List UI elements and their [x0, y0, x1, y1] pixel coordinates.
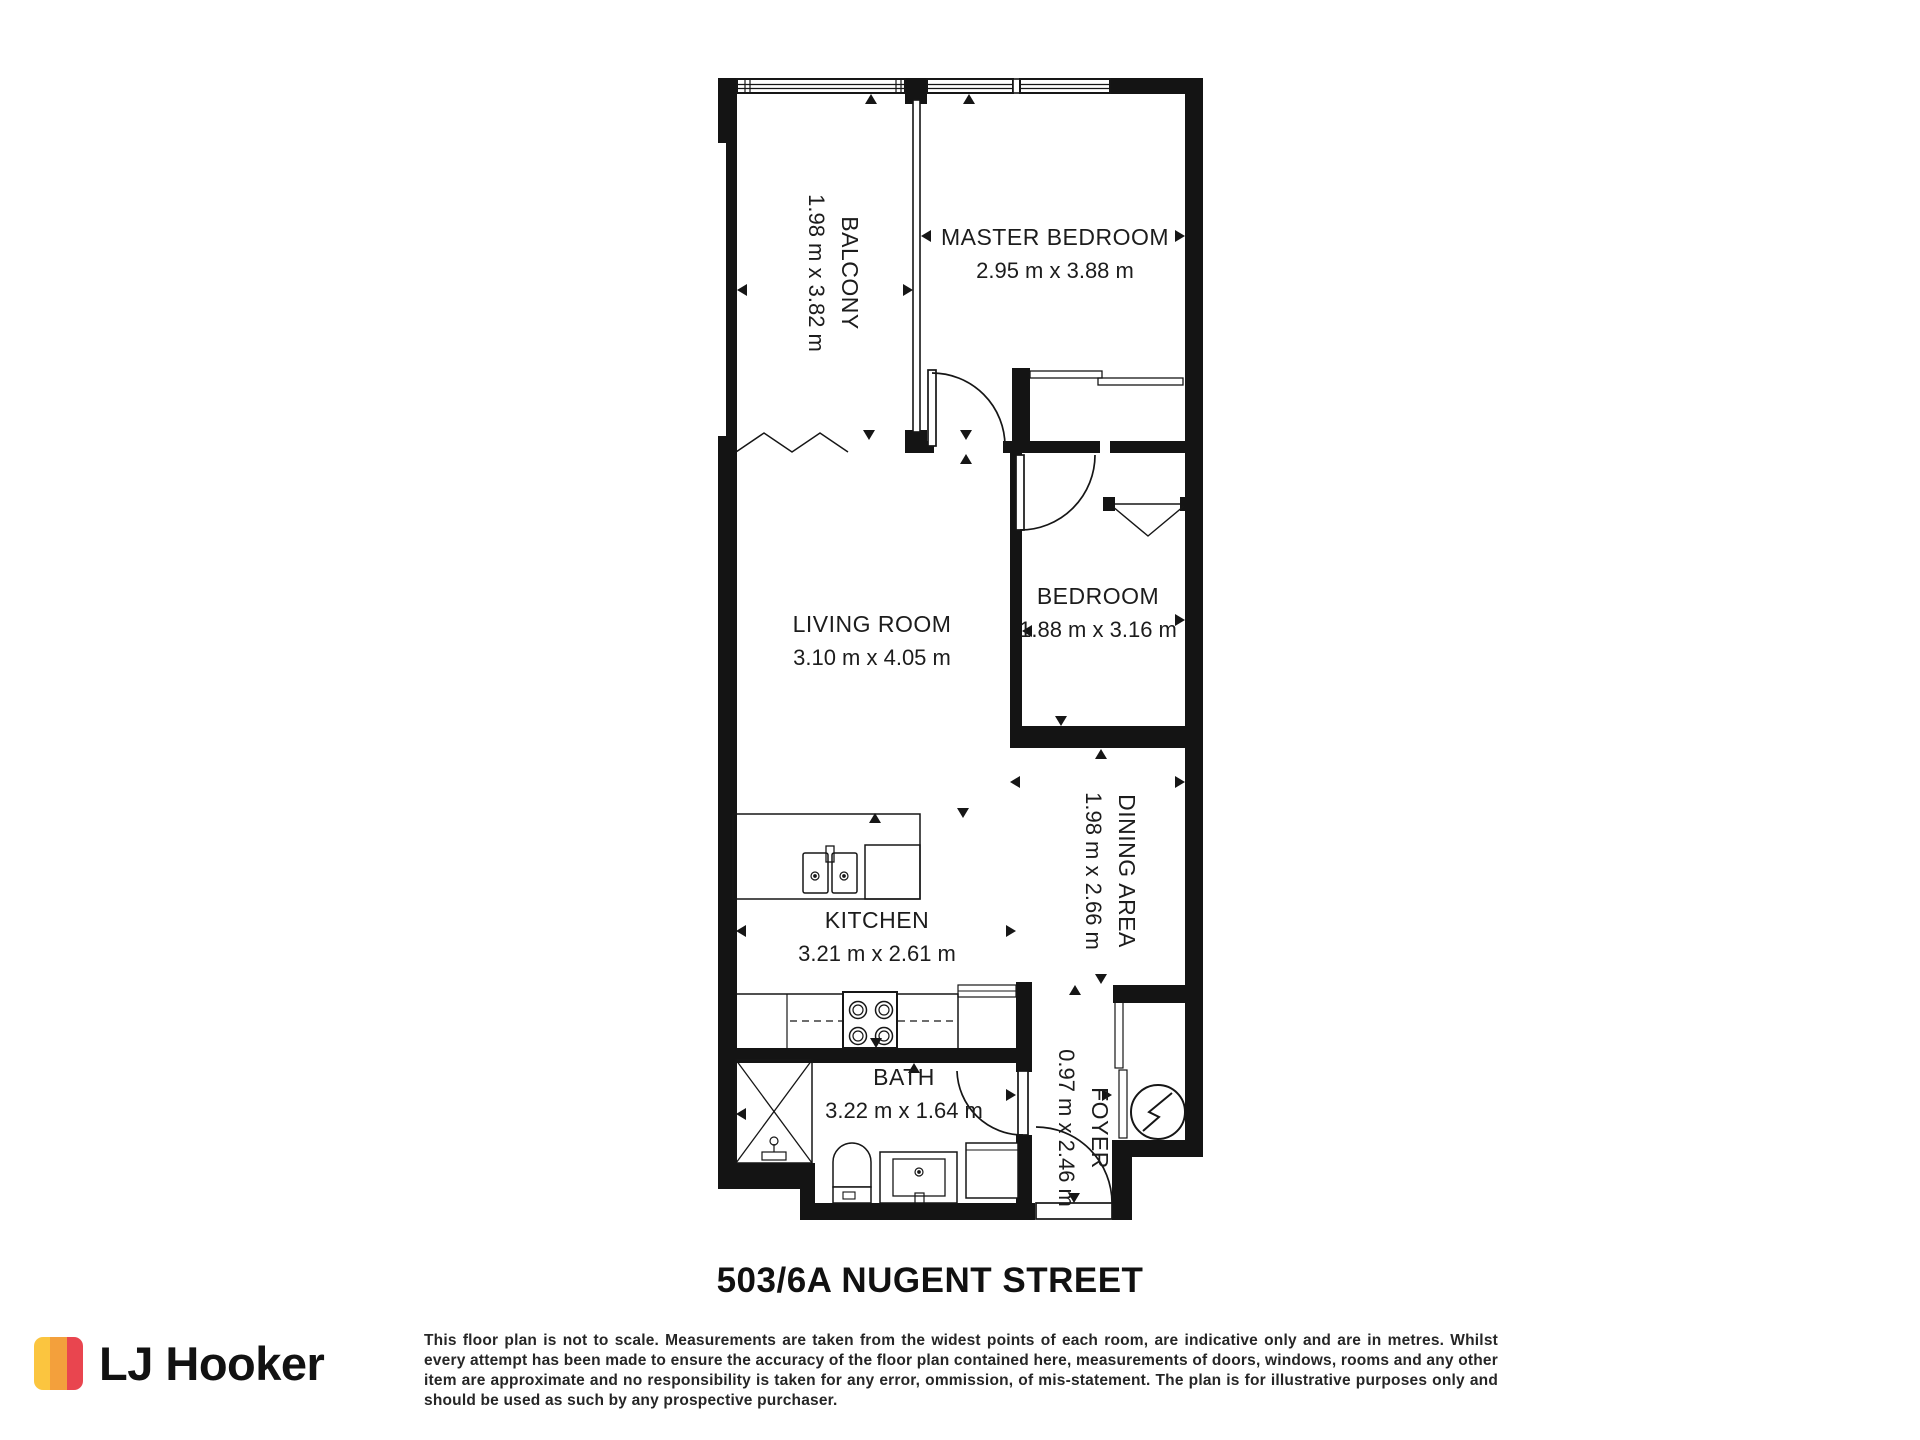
- room-name: KITCHEN: [798, 904, 956, 937]
- logo-bar-red: [67, 1337, 83, 1390]
- balcony-open-edge-zigzag: [736, 433, 848, 452]
- shower-head-icon: [762, 1137, 786, 1160]
- floor-plan-page: BALCONY 1.98 m x 3.82 m MASTER BEDROOM 2…: [0, 0, 1920, 1440]
- room-dimensions: 2.95 m x 3.88 m: [941, 254, 1169, 287]
- room-name: BALCONY: [833, 194, 866, 352]
- room-name: BATH: [825, 1061, 983, 1094]
- washing-machine-icon: [966, 1143, 1018, 1198]
- glass-divider-balcony: [913, 100, 920, 432]
- logo-bar-orange: [50, 1337, 66, 1390]
- window-master-right: [1020, 79, 1110, 93]
- room-name: MASTER BEDROOM: [941, 221, 1169, 254]
- room-label-balcony: BALCONY 1.98 m x 3.82 m: [800, 194, 866, 352]
- wall-bedroom-bottom: [1010, 726, 1203, 748]
- wall-nook-top: [1113, 985, 1203, 1003]
- room-dimensions: 0.97 m x 2.46 m: [1050, 1049, 1083, 1207]
- wall-wardrobe-post: [1012, 368, 1030, 453]
- room-dimensions: 1.88 m x 3.16 m: [1019, 613, 1177, 646]
- room-name: FOYER: [1083, 1049, 1116, 1207]
- room-label-kitchen: KITCHEN 3.21 m x 2.61 m: [798, 904, 956, 970]
- bedroom-door: [1016, 455, 1095, 530]
- vanity-sink-icon: [880, 1152, 957, 1204]
- room-name: LIVING ROOM: [793, 608, 952, 641]
- bedroom-wardrobe: [1103, 497, 1192, 536]
- room-name: DINING AREA: [1110, 792, 1143, 950]
- room-dimensions: 1.98 m x 2.66 m: [1077, 792, 1110, 950]
- room-dimensions: 1.98 m x 3.82 m: [800, 194, 833, 352]
- logo-bar-yellow: [34, 1337, 50, 1390]
- window-master-left: [927, 79, 1013, 93]
- wall-divider-foot: [905, 430, 927, 453]
- electrical-meter-icon: [1131, 1085, 1185, 1139]
- foyer-cupboard-sliding-doors: [1115, 1000, 1127, 1138]
- wardrobe-hanging-icon: [1112, 506, 1184, 536]
- disclaimer-text: This floor plan is not to scale. Measure…: [424, 1331, 1498, 1411]
- lj-hooker-logo-icon: [34, 1337, 83, 1390]
- wall-nook-bottom: [1123, 1140, 1203, 1157]
- room-label-bedroom: BEDROOM 1.88 m x 3.16 m: [1019, 580, 1177, 646]
- shower: [736, 1060, 812, 1163]
- fridge-cabinet: [958, 985, 1016, 997]
- window-balcony: [737, 79, 905, 93]
- master-wardrobe-sliding-doors: [1030, 371, 1183, 385]
- room-dimensions: 3.22 m x 1.64 m: [825, 1094, 983, 1127]
- room-label-living-room: LIVING ROOM 3.10 m x 4.05 m: [793, 608, 952, 674]
- wall-mid-right: [1110, 441, 1193, 453]
- room-label-foyer: FOYER 0.97 m x 2.46 m: [1050, 1049, 1116, 1207]
- lj-hooker-logo: LJ Hooker: [34, 1336, 324, 1391]
- plan-title: 503/6A NUGENT STREET: [717, 1261, 1144, 1301]
- room-name: BEDROOM: [1019, 580, 1177, 613]
- cooktop-icon: [843, 992, 897, 1048]
- room-label-dining-area: DINING AREA 1.98 m x 2.66 m: [1077, 792, 1143, 950]
- toilet-icon: [833, 1143, 871, 1203]
- wall-left-notch: [718, 143, 726, 436]
- room-label-bath: BATH 3.22 m x 1.64 m: [825, 1061, 983, 1127]
- wall-bottom: [800, 1203, 1035, 1220]
- logo-wordmark: LJ Hooker: [99, 1336, 324, 1391]
- room-label-master-bedroom: MASTER BEDROOM 2.95 m x 3.88 m: [941, 221, 1169, 287]
- kitchen-island: [733, 814, 920, 899]
- floor-plan-drawing: [0, 0, 1920, 1440]
- window-mullion: [1013, 79, 1020, 93]
- room-dimensions: 3.10 m x 4.05 m: [793, 641, 952, 674]
- kitchen-sink-icon: [803, 846, 857, 893]
- room-dimensions: 3.21 m x 2.61 m: [798, 937, 956, 970]
